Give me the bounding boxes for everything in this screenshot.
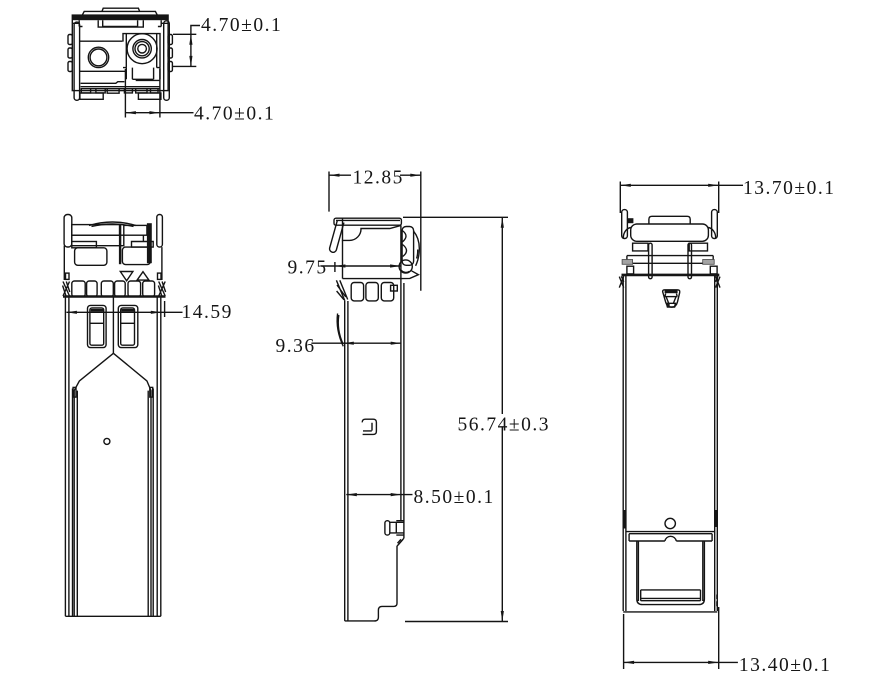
svg-text:9.36: 9.36 [276, 336, 316, 357]
svg-text:4.70±0.1: 4.70±0.1 [194, 104, 275, 125]
svg-text:14.59: 14.59 [182, 302, 233, 323]
svg-text:12.85: 12.85 [353, 167, 404, 188]
svg-text:4.70±0.1: 4.70±0.1 [201, 15, 282, 36]
svg-text:8.50±0.1: 8.50±0.1 [414, 487, 495, 508]
svg-text:56.74±0.3: 56.74±0.3 [458, 415, 550, 436]
svg-text:13.70±0.1: 13.70±0.1 [743, 178, 835, 199]
svg-text:9.75: 9.75 [288, 258, 328, 279]
svg-text:13.40±0.1: 13.40±0.1 [739, 655, 831, 676]
